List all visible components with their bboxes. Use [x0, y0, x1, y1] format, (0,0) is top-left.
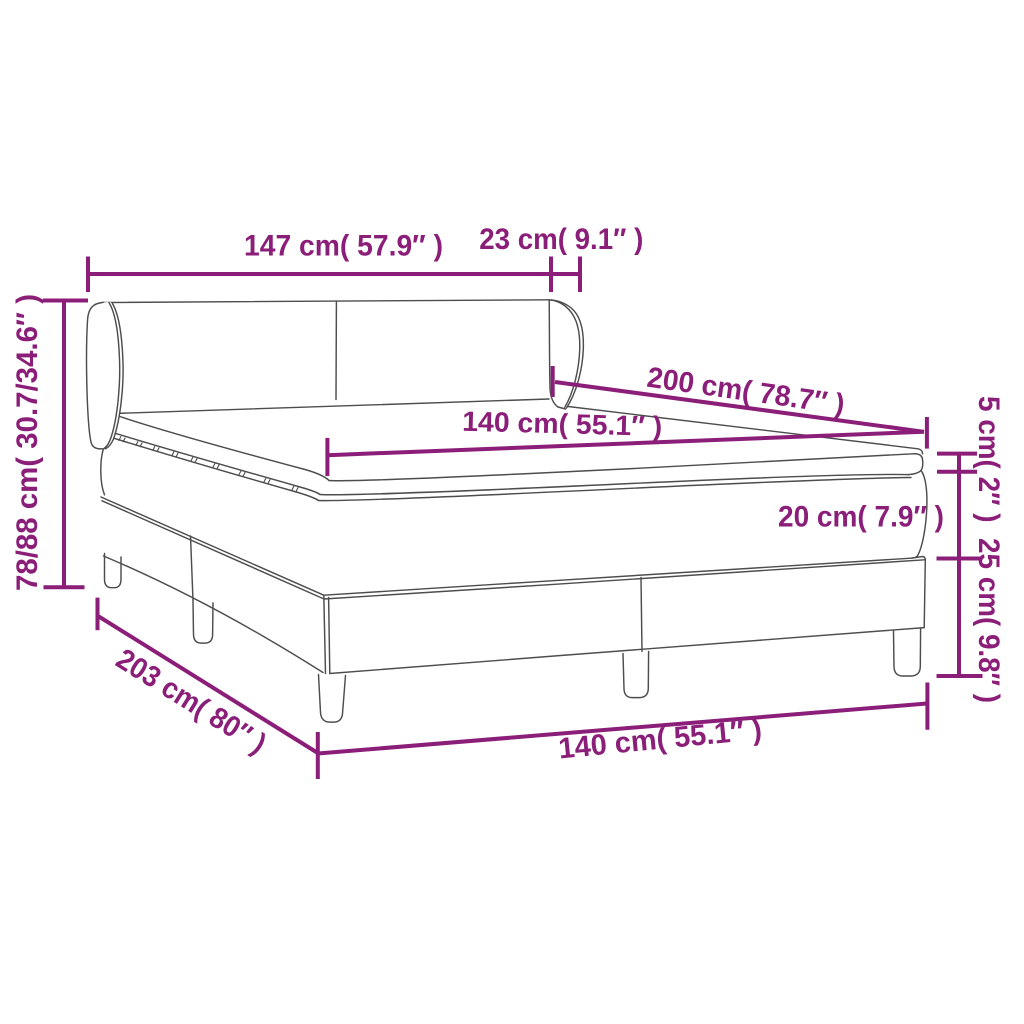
- svg-text:147 cm( 57.9″ ): 147 cm( 57.9″ ): [244, 230, 443, 263]
- svg-text:25 cm( 9.8″ ): 25 cm( 9.8″ ): [972, 538, 1005, 703]
- svg-text:20 cm( 7.9″ ): 20 cm( 7.9″ ): [778, 502, 944, 534]
- svg-text:5 cm( 2″ ): 5 cm( 2″ ): [972, 396, 1005, 523]
- svg-text:23 cm( 9.1″ ): 23 cm( 9.1″ ): [479, 223, 643, 256]
- svg-text:78/88 cm( 30.7/34.6″ ): 78/88 cm( 30.7/34.6″ ): [11, 294, 44, 591]
- svg-text:140 cm( 55.1″ ): 140 cm( 55.1″ ): [462, 406, 663, 442]
